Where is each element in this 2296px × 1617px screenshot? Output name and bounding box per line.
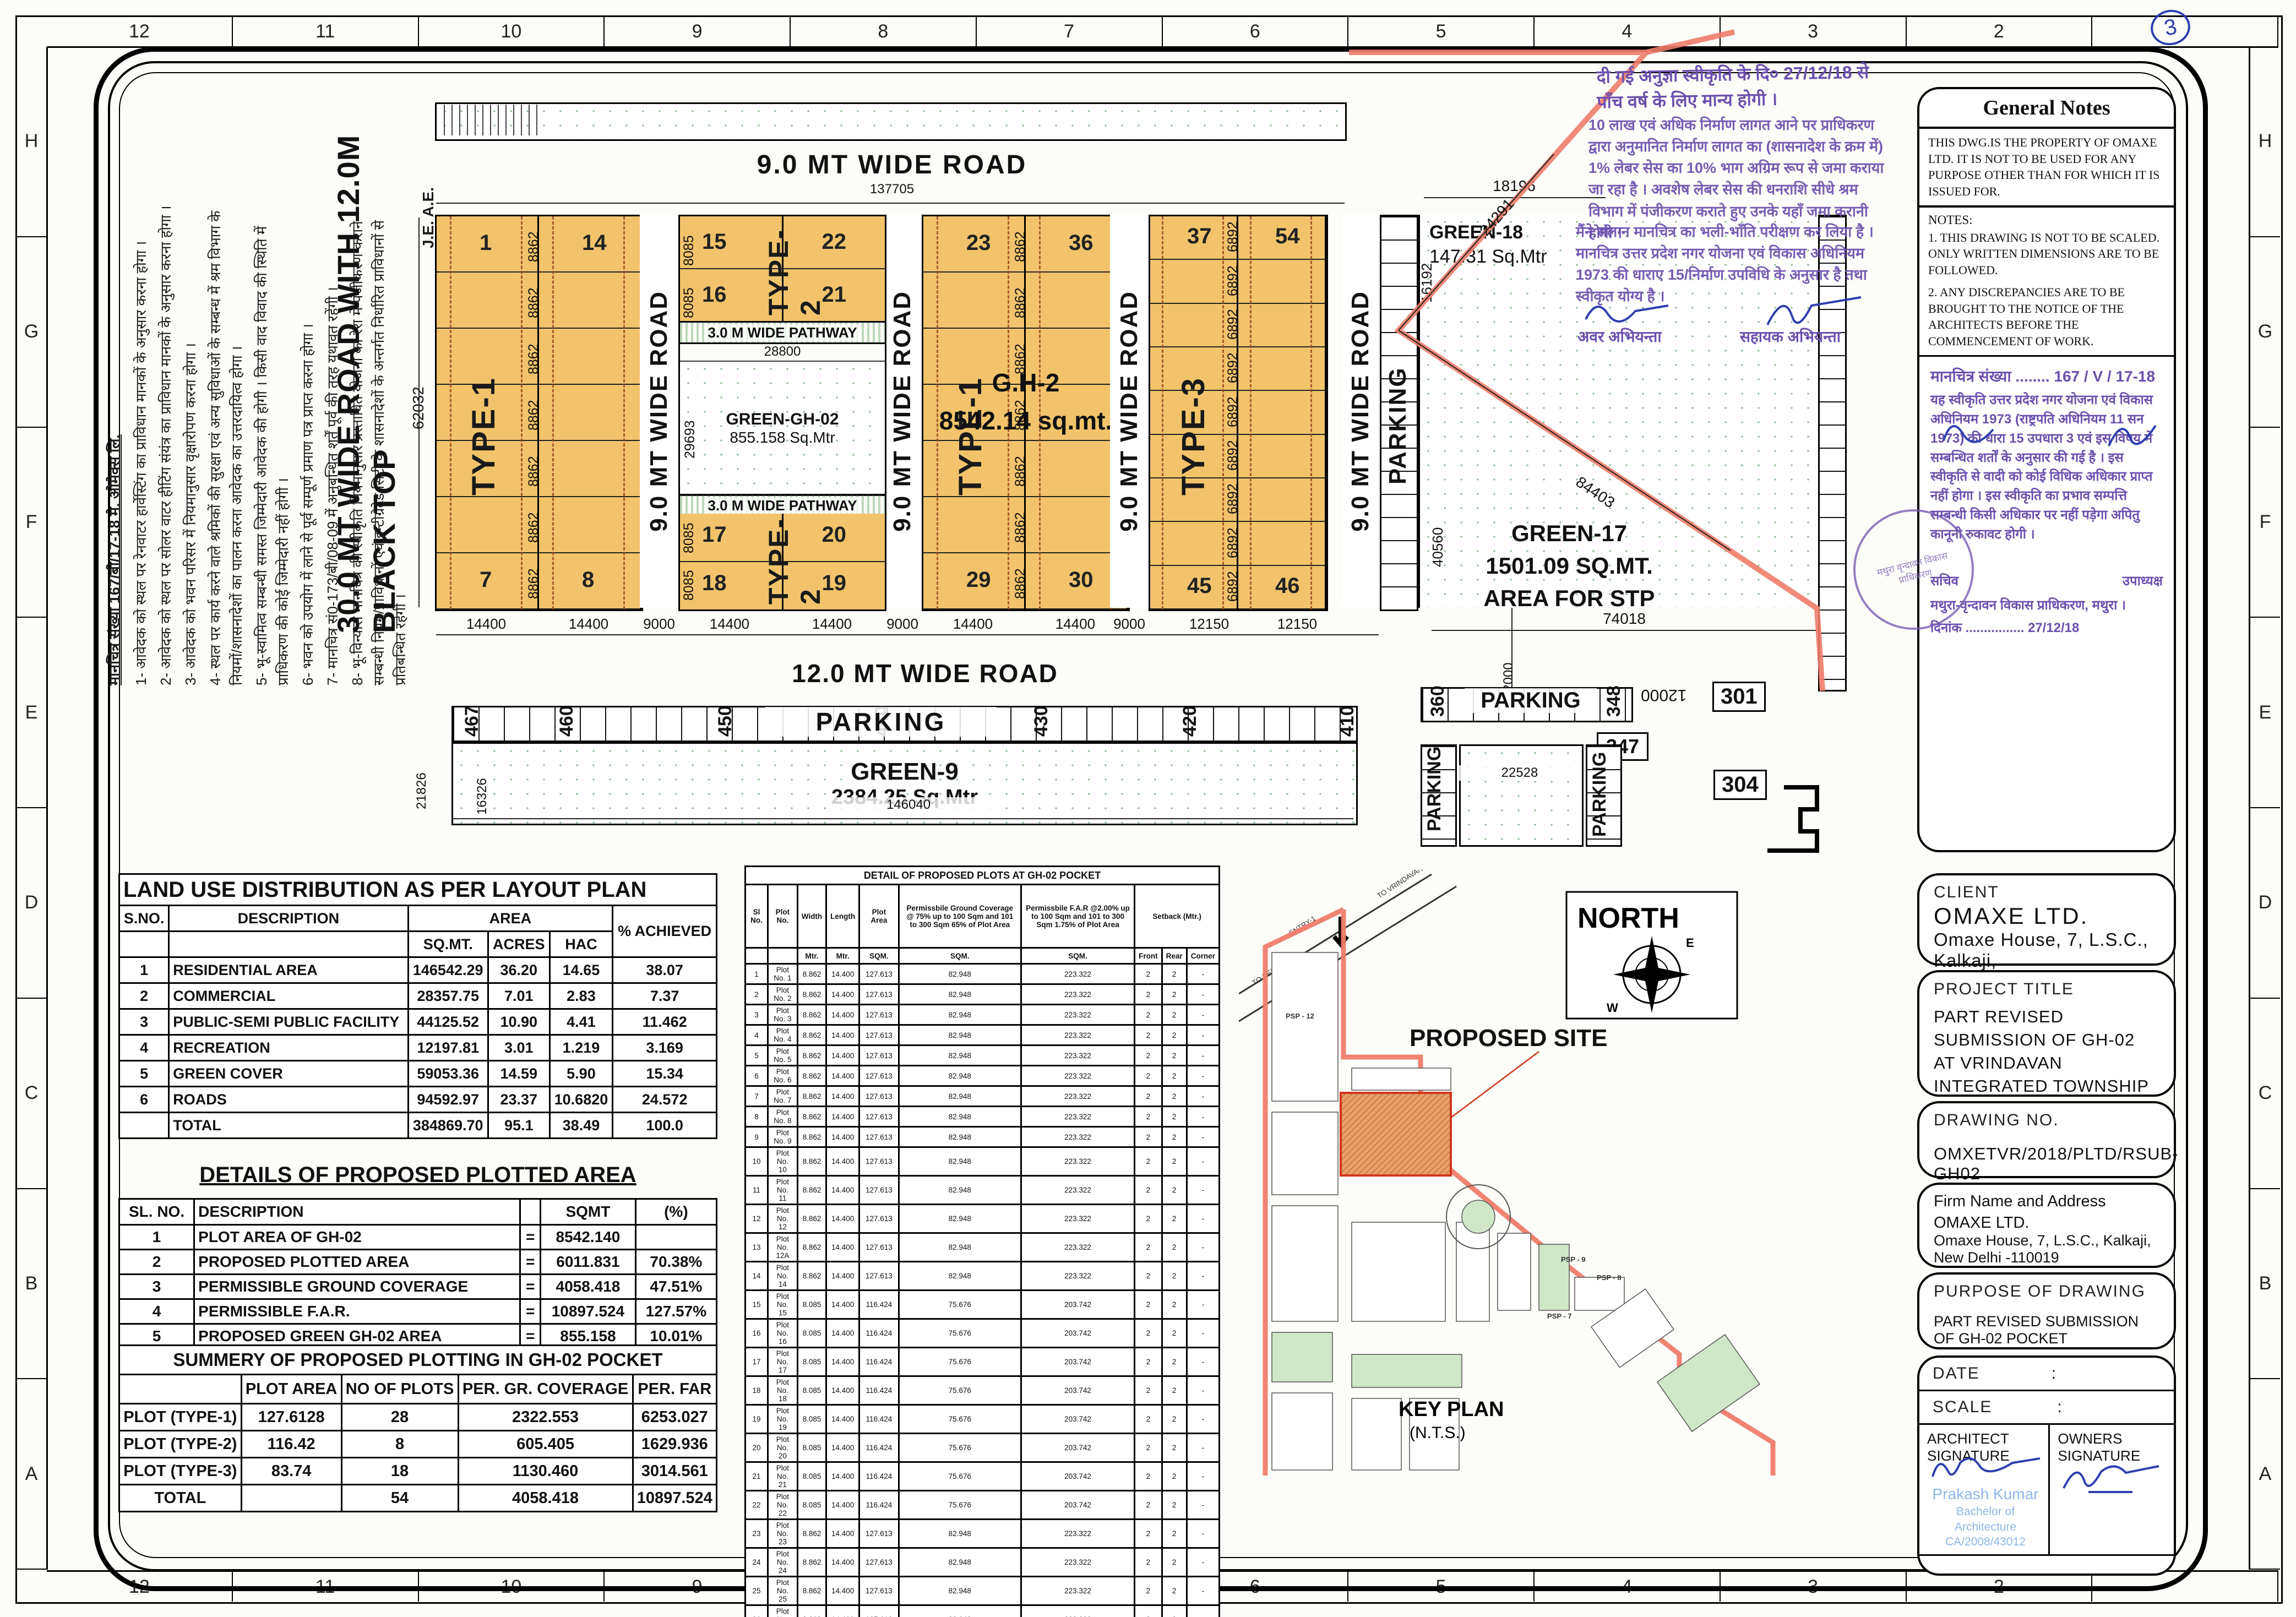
table-cell: Plot No. 12A bbox=[768, 1233, 798, 1262]
purpose-text: PART REVISED SUBMISSION OF GH-02 POCKET bbox=[1934, 1313, 2159, 1347]
table-cell: 127.613 bbox=[859, 1147, 899, 1176]
table-cell bbox=[768, 948, 798, 964]
table-cell: - bbox=[1187, 1176, 1219, 1205]
detail-row: 7Plot No. 78.86214.400127.61382.948223.3… bbox=[746, 1086, 1220, 1107]
table-cell: Plot No. 23 bbox=[768, 1520, 798, 1548]
purpose-panel: PURPOSE OF DRAWING PART REVISED SUBMISSI… bbox=[1917, 1272, 2176, 1349]
side-note-item: 2- आवेदक को स्थल पर सोलर वाटर हीटिंग संय… bbox=[155, 187, 177, 685]
table-cell: 127.613 bbox=[859, 964, 899, 984]
table-cell: Plot No. 16 bbox=[768, 1319, 798, 1348]
table-cell: 8.085 bbox=[797, 1462, 826, 1491]
table-cell: 127.613 bbox=[859, 1005, 899, 1025]
table-cell: 4 bbox=[119, 1035, 169, 1061]
table-cell: 14.400 bbox=[826, 1066, 859, 1086]
drawing-no-label: DRAWING NO. bbox=[1934, 1111, 2159, 1130]
table-cell: 127.613 bbox=[859, 1205, 899, 1233]
table-cell: 2 bbox=[1162, 984, 1187, 1005]
table-cell: 28 bbox=[341, 1404, 458, 1431]
detail-plots-table: DETAIL OF PROPOSED PLOTS AT GH-02 POCKET… bbox=[744, 865, 1220, 1617]
table-cell: 2 bbox=[1135, 1205, 1162, 1233]
table-cell: 82.948 bbox=[899, 1066, 1021, 1086]
table-cell: 14.400 bbox=[826, 1025, 859, 1046]
table-cell: 127.613 bbox=[859, 1520, 899, 1548]
side-notes-signatures: J.E. A.E. bbox=[417, 187, 440, 685]
table-cell: 2 bbox=[1135, 964, 1162, 984]
notes-stamp-date: दिनांक ................ 27/12/18 bbox=[1930, 619, 2163, 638]
table-cell: 15 bbox=[746, 1291, 768, 1319]
table-cell: - bbox=[1187, 1405, 1219, 1434]
table-cell: 116.42 bbox=[241, 1431, 341, 1458]
table-cell: Width bbox=[797, 885, 826, 948]
table-cell: 223.322 bbox=[1021, 1520, 1134, 1548]
stamp-sig-right-label: सहायक अभियन्ता bbox=[1740, 326, 1841, 349]
table-cell: 10897.524 bbox=[541, 1299, 636, 1324]
table-cell: PLOT (TYPE-2) bbox=[119, 1431, 242, 1458]
client-panel: CLIENT OMAXE LTD. Omaxe House, 7, L.S.C.… bbox=[1917, 873, 2176, 966]
firm-addr1: Omaxe House, 7, L.S.C., Kalkaji, bbox=[1934, 1232, 2159, 1249]
table-cell: Rear bbox=[1162, 948, 1187, 964]
table-cell: 223.322 bbox=[1021, 1127, 1134, 1147]
table-cell: PERMISSIBLE F.A.R. bbox=[194, 1299, 520, 1324]
table-cell: 82.948 bbox=[899, 1176, 1021, 1205]
table-cell: 116.424 bbox=[859, 1376, 899, 1405]
table-cell: 2 bbox=[746, 984, 768, 1005]
table-cell: 116.424 bbox=[859, 1319, 899, 1348]
firm-label: Firm Name and Address bbox=[1934, 1193, 2159, 1211]
table-cell: (%) bbox=[635, 1199, 716, 1225]
dim-12000-flip: 12000 bbox=[1641, 685, 1686, 704]
table-cell: Plot No. 17 bbox=[768, 1348, 798, 1376]
svg-text:PSP - 9: PSP - 9 bbox=[1561, 1255, 1586, 1264]
table-cell: 2 bbox=[1135, 1046, 1162, 1066]
table-cell: 2 bbox=[1162, 1376, 1187, 1405]
detail-row: 4Plot No. 48.86214.400127.61382.948223.3… bbox=[746, 1025, 1220, 1046]
table-cell: - bbox=[1187, 984, 1219, 1005]
table-cell: 24.572 bbox=[613, 1087, 717, 1113]
bottom-parking-label: PARKING bbox=[765, 707, 997, 737]
plotted-area-table-wrap: SL. NO.DESCRIPTIONSQMT(%)1PLOT AREA OF G… bbox=[118, 1198, 717, 1349]
table-cell: 2 bbox=[1135, 1291, 1162, 1319]
detail-row: 14Plot No. 148.86214.400127.61382.948223… bbox=[746, 1262, 1220, 1291]
table-cell: Plot No. 3 bbox=[768, 1005, 798, 1025]
bottom-col-dim: 12150 bbox=[1176, 616, 1242, 633]
table-cell: 47.51% bbox=[635, 1275, 716, 1299]
table-cell: 12197.81 bbox=[408, 1035, 488, 1061]
table-cell: 12 bbox=[746, 1205, 768, 1233]
table-cell: - bbox=[1187, 1107, 1219, 1127]
table-cell: PER. GR. COVERAGE bbox=[458, 1375, 633, 1404]
firm-panel: Firm Name and Address OMAXE LTD. Omaxe H… bbox=[1917, 1183, 2176, 1268]
table-cell: 223.322 bbox=[1021, 1205, 1134, 1233]
table-cell: 116.424 bbox=[859, 1462, 899, 1491]
svg-text:PSP - 7: PSP - 7 bbox=[1547, 1312, 1572, 1320]
table-cell: % ACHIEVED bbox=[613, 906, 717, 957]
architect-stamp-reg: CA/2008/43012 bbox=[1925, 1534, 2046, 1549]
table-cell: TOTAL bbox=[119, 1485, 242, 1512]
table-cell: DESCRIPTION bbox=[169, 906, 408, 932]
notes-stamp-line1: मानचित्र संख्या ........ 167 / V / 17-18 bbox=[1930, 366, 2163, 388]
table-cell: - bbox=[1187, 1376, 1219, 1405]
table-cell: 2 bbox=[1162, 1005, 1187, 1025]
side-note-item: 1- आवेदक को स्थल पर रेनवाटर हार्वेस्टिंग… bbox=[130, 187, 152, 685]
table-cell: 14.400 bbox=[826, 1233, 859, 1262]
bottom-col-dim: 14400 bbox=[940, 616, 1006, 633]
side-note-item: 5- भू-स्वामित्व सम्बन्धी समस्त जिम्मेदार… bbox=[251, 187, 294, 685]
table-cell: 1 bbox=[119, 957, 169, 983]
table-cell: 18 bbox=[746, 1376, 768, 1405]
bottom-col-dim: 12150 bbox=[1264, 616, 1330, 633]
green9-dim-left2: 16326 bbox=[475, 749, 490, 815]
bottom-road-label: 12.0 MT WIDE ROAD bbox=[716, 658, 1134, 688]
table-cell: 6 bbox=[746, 1066, 768, 1086]
table-cell: 2 bbox=[1162, 1319, 1187, 1348]
table-cell: 2 bbox=[1162, 1086, 1187, 1107]
table-cell: PUBLIC-SEMI PUBLIC FACILITY bbox=[169, 1009, 408, 1035]
drawing-no-panel: DRAWING NO. OMXETVR/2018/PLTD/RSUB-GH02 bbox=[1917, 1101, 2176, 1178]
table-cell: 94592.97 bbox=[408, 1087, 488, 1113]
table-cell: Plot No. 7 bbox=[768, 1086, 798, 1107]
table-cell: = bbox=[520, 1299, 541, 1324]
key-plan: ENTRY-1 TO VRINDAVAN TO DELHI P bbox=[1239, 870, 1800, 1492]
table-cell: Plot No. 24 bbox=[768, 1548, 798, 1577]
land-use-table-wrap: LAND USE DISTRIBUTION AS PER LAYOUT PLAN… bbox=[118, 873, 717, 1139]
table-cell: 2 bbox=[1135, 1147, 1162, 1176]
table-cell: 8.862 bbox=[797, 1005, 826, 1025]
table-cell: 28357.75 bbox=[408, 983, 488, 1009]
proposed-site-block bbox=[1341, 1093, 1451, 1175]
detail-row: 16Plot No. 168.08514.400116.42475.676203… bbox=[746, 1319, 1220, 1348]
table-cell: = bbox=[520, 1225, 541, 1250]
bottom-col-dim: 9000 bbox=[1096, 616, 1162, 633]
table-cell: 2 bbox=[1135, 1233, 1162, 1262]
table-cell: - bbox=[1187, 1046, 1219, 1066]
table-cell: 75.676 bbox=[899, 1405, 1021, 1434]
side-note-item: 7- मानचित्र सं0-173/बी/08-09 में अनुबन्ध… bbox=[322, 187, 344, 685]
table-cell: 116.424 bbox=[859, 1405, 899, 1434]
table-cell: 2 bbox=[1162, 1577, 1187, 1605]
building-step-outline bbox=[1767, 787, 1817, 851]
table-cell: 2 bbox=[1162, 1491, 1187, 1520]
num-301: 301 bbox=[1712, 682, 1766, 712]
client-addr1: Omaxe House, 7, L.S.C., Kalkaji, bbox=[1934, 929, 2159, 971]
table-cell: 10.6820 bbox=[549, 1087, 613, 1113]
table-cell: 14.400 bbox=[826, 1405, 859, 1434]
table-cell: - bbox=[1187, 1520, 1219, 1548]
table-cell: 14.400 bbox=[826, 1107, 859, 1127]
table-cell: 14.400 bbox=[826, 1046, 859, 1066]
parking-stall-number: 467 bbox=[461, 708, 483, 737]
table-cell: 38.49 bbox=[549, 1113, 613, 1139]
table-cell: 5.90 bbox=[549, 1061, 613, 1087]
table-cell: - bbox=[1187, 1434, 1219, 1462]
table-cell: SQM. bbox=[859, 948, 899, 964]
table-cell: DETAIL OF PROPOSED PLOTS AT GH-02 POCKET bbox=[746, 867, 1220, 885]
table-cell: PLOT (TYPE-1) bbox=[119, 1404, 242, 1431]
north-label: NORTH bbox=[1577, 902, 1679, 934]
table-cell: 82.948 bbox=[899, 1548, 1021, 1577]
table-cell: 82.948 bbox=[899, 1577, 1021, 1605]
table-cell: 14.400 bbox=[826, 1086, 859, 1107]
table-cell: 14.400 bbox=[826, 1205, 859, 1233]
table-cell: 23 bbox=[746, 1520, 768, 1548]
note-2: 2. ANY DISCREPANCIES ARE TO BE BROUGHT T… bbox=[1928, 284, 2165, 350]
table-cell: 14.400 bbox=[826, 964, 859, 984]
table-cell: 223.322 bbox=[1021, 964, 1134, 984]
table-cell: COMMERCIAL bbox=[169, 983, 408, 1009]
table-cell bbox=[119, 1375, 242, 1404]
client-label: CLIENT bbox=[1934, 883, 2159, 902]
side-notes-heading: मानचित्र संख्या 167/बी/17-18 मे. ओमेक्स … bbox=[104, 187, 126, 685]
table-cell: - bbox=[1187, 1291, 1219, 1319]
num-304: 304 bbox=[1713, 770, 1767, 800]
table-cell: Plot No. 10 bbox=[768, 1147, 798, 1176]
table-cell: 203.742 bbox=[1021, 1319, 1134, 1348]
svg-text:E: E bbox=[1686, 936, 1694, 950]
table-cell: 38.07 bbox=[613, 957, 717, 983]
table-cell: Plot No. 4 bbox=[768, 1025, 798, 1046]
drawing-no-value: OMXETVR/2018/PLTD/RSUB-GH02 bbox=[1934, 1144, 2159, 1184]
table-cell: 13 bbox=[746, 1233, 768, 1262]
table-cell: 2 bbox=[1135, 1086, 1162, 1107]
table-cell: 2 bbox=[1162, 1291, 1187, 1319]
general-notes-panel: General Notes THIS DWG.IS THE PROPERTY O… bbox=[1917, 87, 2176, 852]
table-cell: 2 bbox=[1162, 1434, 1187, 1462]
notes-stamp-sig-right: उपाध्यक्ष bbox=[2123, 572, 2163, 591]
table-cell: 2 bbox=[1162, 1066, 1187, 1086]
table-cell: 14.400 bbox=[826, 1319, 859, 1348]
table-cell: ACRES bbox=[488, 932, 549, 957]
proposed-site-label: PROPOSED SITE bbox=[1410, 1025, 1607, 1052]
table-cell: 75.676 bbox=[899, 1376, 1021, 1405]
to-vrindavan-label: TO VRINDAVAN bbox=[1375, 870, 1424, 900]
owner-signature-scribble bbox=[2055, 1458, 2166, 1502]
table-cell: Plot No. 22 bbox=[768, 1491, 798, 1520]
table-cell: Plot No. 2 bbox=[768, 984, 798, 1005]
table-cell: 7 bbox=[746, 1086, 768, 1107]
drawing-sheet: 12111098765432 12111098765432 HGFEDCBA H… bbox=[0, 0, 2296, 1617]
date-label: DATE bbox=[1933, 1364, 1980, 1383]
project-title-label: PROJECT TITLE bbox=[1934, 980, 2159, 999]
table-cell: 14.400 bbox=[826, 1127, 859, 1147]
table-cell: 75.676 bbox=[899, 1348, 1021, 1376]
table-cell: 8.862 bbox=[797, 1107, 826, 1127]
detail-row: 26Plot No. 268.86214.400127.61382.948223… bbox=[746, 1605, 1220, 1617]
table-cell: 8.085 bbox=[797, 1491, 826, 1520]
table-cell: - bbox=[1187, 1066, 1219, 1086]
svg-text:PSP - 12: PSP - 12 bbox=[1286, 1012, 1314, 1020]
table-cell: 2 bbox=[1135, 1066, 1162, 1086]
table-cell: SQM. bbox=[1021, 948, 1134, 964]
table-cell: 22 bbox=[746, 1491, 768, 1520]
table-cell: 3 bbox=[746, 1005, 768, 1025]
table-cell: 3.01 bbox=[488, 1035, 549, 1061]
table-cell: 82.948 bbox=[899, 1262, 1021, 1291]
stamp-sig-left-label: अवर अभियन्ता bbox=[1577, 326, 1662, 349]
table-cell: Plot No. 8 bbox=[768, 1107, 798, 1127]
table-cell: 8.862 bbox=[797, 1147, 826, 1176]
table-cell: 6253.027 bbox=[633, 1404, 716, 1431]
note-1: 1. THIS DRAWING IS NOT TO BE SCALED. ONL… bbox=[1928, 230, 2165, 279]
table-cell: 2 bbox=[1162, 1025, 1187, 1046]
detail-row: 13Plot No. 12A8.86214.400127.61382.94822… bbox=[746, 1233, 1220, 1262]
table-cell: 203.742 bbox=[1021, 1462, 1134, 1491]
table-cell: Plot No. 19 bbox=[768, 1405, 798, 1434]
table-cell: 25 bbox=[746, 1577, 768, 1605]
table-cell: 14.400 bbox=[826, 1577, 859, 1605]
table-cell: - bbox=[1187, 1491, 1219, 1520]
table-cell: 2322.553 bbox=[458, 1404, 633, 1431]
table-cell: 54 bbox=[341, 1485, 458, 1512]
table-cell: 127.613 bbox=[859, 1548, 899, 1577]
detail-table-wrap: DETAIL OF PROPOSED PLOTS AT GH-02 POCKET… bbox=[744, 865, 1220, 1617]
table-cell: Plot No. 6 bbox=[768, 1066, 798, 1086]
table-cell: Plot No. 9 bbox=[768, 1127, 798, 1147]
table-cell: - bbox=[1187, 1086, 1219, 1107]
client-name: OMAXE LTD. bbox=[1934, 903, 2159, 929]
table-cell: 2 bbox=[1135, 1548, 1162, 1577]
diag-dim-24291: 24291 bbox=[1476, 195, 1517, 239]
architect-stamp-name: Prakash Kumar bbox=[1925, 1484, 2046, 1504]
bottom-col-dim: 9000 bbox=[869, 616, 935, 633]
table-cell: 82.948 bbox=[899, 1127, 1021, 1147]
table-cell: 2 bbox=[1162, 1176, 1187, 1205]
table-cell: 4058.418 bbox=[541, 1275, 636, 1299]
table-cell: 3 bbox=[119, 1009, 169, 1035]
table-cell: PERMISSIBLE GROUND COVERAGE bbox=[194, 1275, 520, 1299]
num-360: 360 bbox=[1427, 689, 1449, 717]
summary-table-wrap: SUMMERY OF PROPOSED PLOTTING IN GH-02 PO… bbox=[118, 1344, 717, 1512]
table-cell: 223.322 bbox=[1021, 1005, 1134, 1025]
table-cell: 14.400 bbox=[826, 1605, 859, 1617]
green-22528 bbox=[1459, 744, 1584, 847]
table-cell: 16 bbox=[746, 1319, 768, 1348]
table-cell: 605.405 bbox=[458, 1431, 633, 1458]
purpose-label: PURPOSE OF DRAWING bbox=[1934, 1282, 2159, 1301]
table-cell: 14.400 bbox=[826, 1005, 859, 1025]
table-cell: Plot No. 18 bbox=[768, 1376, 798, 1405]
table-cell: 2 bbox=[1162, 1262, 1187, 1291]
table-cell: 203.742 bbox=[1021, 1405, 1134, 1434]
table-cell: Plot No. 20 bbox=[768, 1434, 798, 1462]
detail-row: 9Plot No. 98.86214.400127.61382.948223.3… bbox=[746, 1127, 1220, 1147]
table-cell: 82.948 bbox=[899, 1046, 1021, 1066]
summary-table: SUMMERY OF PROPOSED PLOTTING IN GH-02 PO… bbox=[118, 1344, 717, 1512]
table-cell: 82.948 bbox=[899, 1025, 1021, 1046]
detail-row: 2Plot No. 28.86214.400127.61382.948223.3… bbox=[746, 984, 1220, 1005]
table-cell bbox=[520, 1199, 541, 1225]
table-cell: 14.400 bbox=[826, 1262, 859, 1291]
table-cell: 70.38% bbox=[635, 1250, 716, 1275]
table-cell: Plot No. bbox=[768, 885, 798, 948]
table-cell: 127.613 bbox=[859, 1025, 899, 1046]
table-cell: 203.742 bbox=[1021, 1291, 1134, 1319]
table-cell: 14.400 bbox=[826, 1548, 859, 1577]
firm-name: OMAXE LTD. bbox=[1934, 1214, 2159, 1232]
side-note-item: 4- स्थल पर कार्य करने वाले श्रमिकों की स… bbox=[205, 187, 248, 685]
table-cell: 1 bbox=[119, 1225, 194, 1250]
table-cell: 8.085 bbox=[797, 1348, 826, 1376]
table-cell: 82.948 bbox=[899, 1147, 1021, 1176]
table-cell: 82.948 bbox=[899, 1107, 1021, 1127]
table-cell: 2 bbox=[1135, 984, 1162, 1005]
table-cell: 36.20 bbox=[488, 957, 549, 983]
table-cell: 223.322 bbox=[1021, 984, 1134, 1005]
table-cell: 203.742 bbox=[1021, 1376, 1134, 1405]
stamp-validity: दी गई अनुज्ञा स्वीकृति के दि० 27/12/18 स… bbox=[1596, 59, 1873, 115]
parking-stall-number: 430 bbox=[1031, 708, 1052, 737]
table-cell: Front bbox=[1135, 948, 1162, 964]
table-cell: 4.41 bbox=[549, 1009, 613, 1035]
table-cell: 18 bbox=[341, 1458, 458, 1485]
table-cell: 2 bbox=[1135, 1605, 1162, 1617]
table-cell: 10.90 bbox=[488, 1009, 549, 1035]
table-cell bbox=[746, 948, 768, 964]
table-cell: = bbox=[520, 1250, 541, 1275]
green9-dim-left: 21826 bbox=[414, 732, 429, 809]
table-cell: 8.085 bbox=[797, 1376, 826, 1405]
table-cell: 2 bbox=[1162, 1405, 1187, 1434]
table-cell: 75.676 bbox=[899, 1291, 1021, 1319]
table-cell: 2 bbox=[1135, 1319, 1162, 1348]
table-cell: 75.676 bbox=[899, 1434, 1021, 1462]
table-cell: 100.0 bbox=[613, 1113, 717, 1139]
table-cell: 223.322 bbox=[1021, 1577, 1134, 1605]
table-cell: 8.085 bbox=[797, 1434, 826, 1462]
table-cell: 2 bbox=[1135, 1025, 1162, 1046]
table-cell: 6011.831 bbox=[541, 1250, 636, 1275]
table-cell: 2 bbox=[1162, 1233, 1187, 1262]
table-cell: 8.085 bbox=[797, 1405, 826, 1434]
table-cell: 5 bbox=[746, 1046, 768, 1066]
detail-row: 1Plot No. 18.86214.400127.61382.948223.3… bbox=[746, 964, 1220, 984]
notes-label: NOTES: bbox=[1928, 213, 2165, 227]
detail-row: 6Plot No. 68.86214.400127.61382.948223.3… bbox=[746, 1066, 1220, 1086]
table-cell: SL. NO. bbox=[119, 1199, 194, 1225]
table-cell: 2 bbox=[1135, 1262, 1162, 1291]
table-cell: 75.676 bbox=[899, 1491, 1021, 1520]
table-cell: 9 bbox=[746, 1127, 768, 1147]
table-cell: 4 bbox=[119, 1299, 194, 1324]
table-cell: 82.948 bbox=[899, 964, 1021, 984]
detail-row: 18Plot No. 188.08514.400116.42475.676203… bbox=[746, 1376, 1220, 1405]
table-cell bbox=[635, 1225, 716, 1250]
table-cell: 1629.936 bbox=[633, 1431, 716, 1458]
table-cell: - bbox=[1187, 1127, 1219, 1147]
parking-lane2-label: PARKING bbox=[1424, 760, 1445, 831]
table-cell: 82.948 bbox=[899, 1233, 1021, 1262]
table-cell: LAND USE DISTRIBUTION AS PER LAYOUT PLAN bbox=[119, 874, 717, 906]
table-cell: 8.862 bbox=[797, 1605, 826, 1617]
table-cell: 2 bbox=[1135, 1005, 1162, 1025]
keyplan-caption2: (N.T.S.) bbox=[1410, 1424, 1466, 1442]
table-cell: - bbox=[1187, 1605, 1219, 1617]
table-cell: 5 bbox=[119, 1061, 169, 1087]
table-cell: 203.742 bbox=[1021, 1434, 1134, 1462]
table-cell: 3014.561 bbox=[633, 1458, 716, 1485]
table-cell: 95.1 bbox=[488, 1113, 549, 1139]
table-cell: 2 bbox=[1162, 1462, 1187, 1491]
green9-dim-bottom: 146040 bbox=[826, 797, 991, 813]
plotted-area-title: DETAILS OF PROPOSED PLOTTED AREA bbox=[118, 1163, 717, 1188]
table-cell: 82.948 bbox=[899, 1605, 1021, 1617]
table-cell: 127.613 bbox=[859, 1176, 899, 1205]
table-cell bbox=[169, 932, 408, 957]
table-cell: RESIDENTIAL AREA bbox=[169, 957, 408, 983]
table-cell: Corner bbox=[1187, 948, 1219, 964]
table-cell: 14.400 bbox=[826, 984, 859, 1005]
table-cell: 8.085 bbox=[797, 1291, 826, 1319]
svg-text:W: W bbox=[1607, 1001, 1618, 1015]
